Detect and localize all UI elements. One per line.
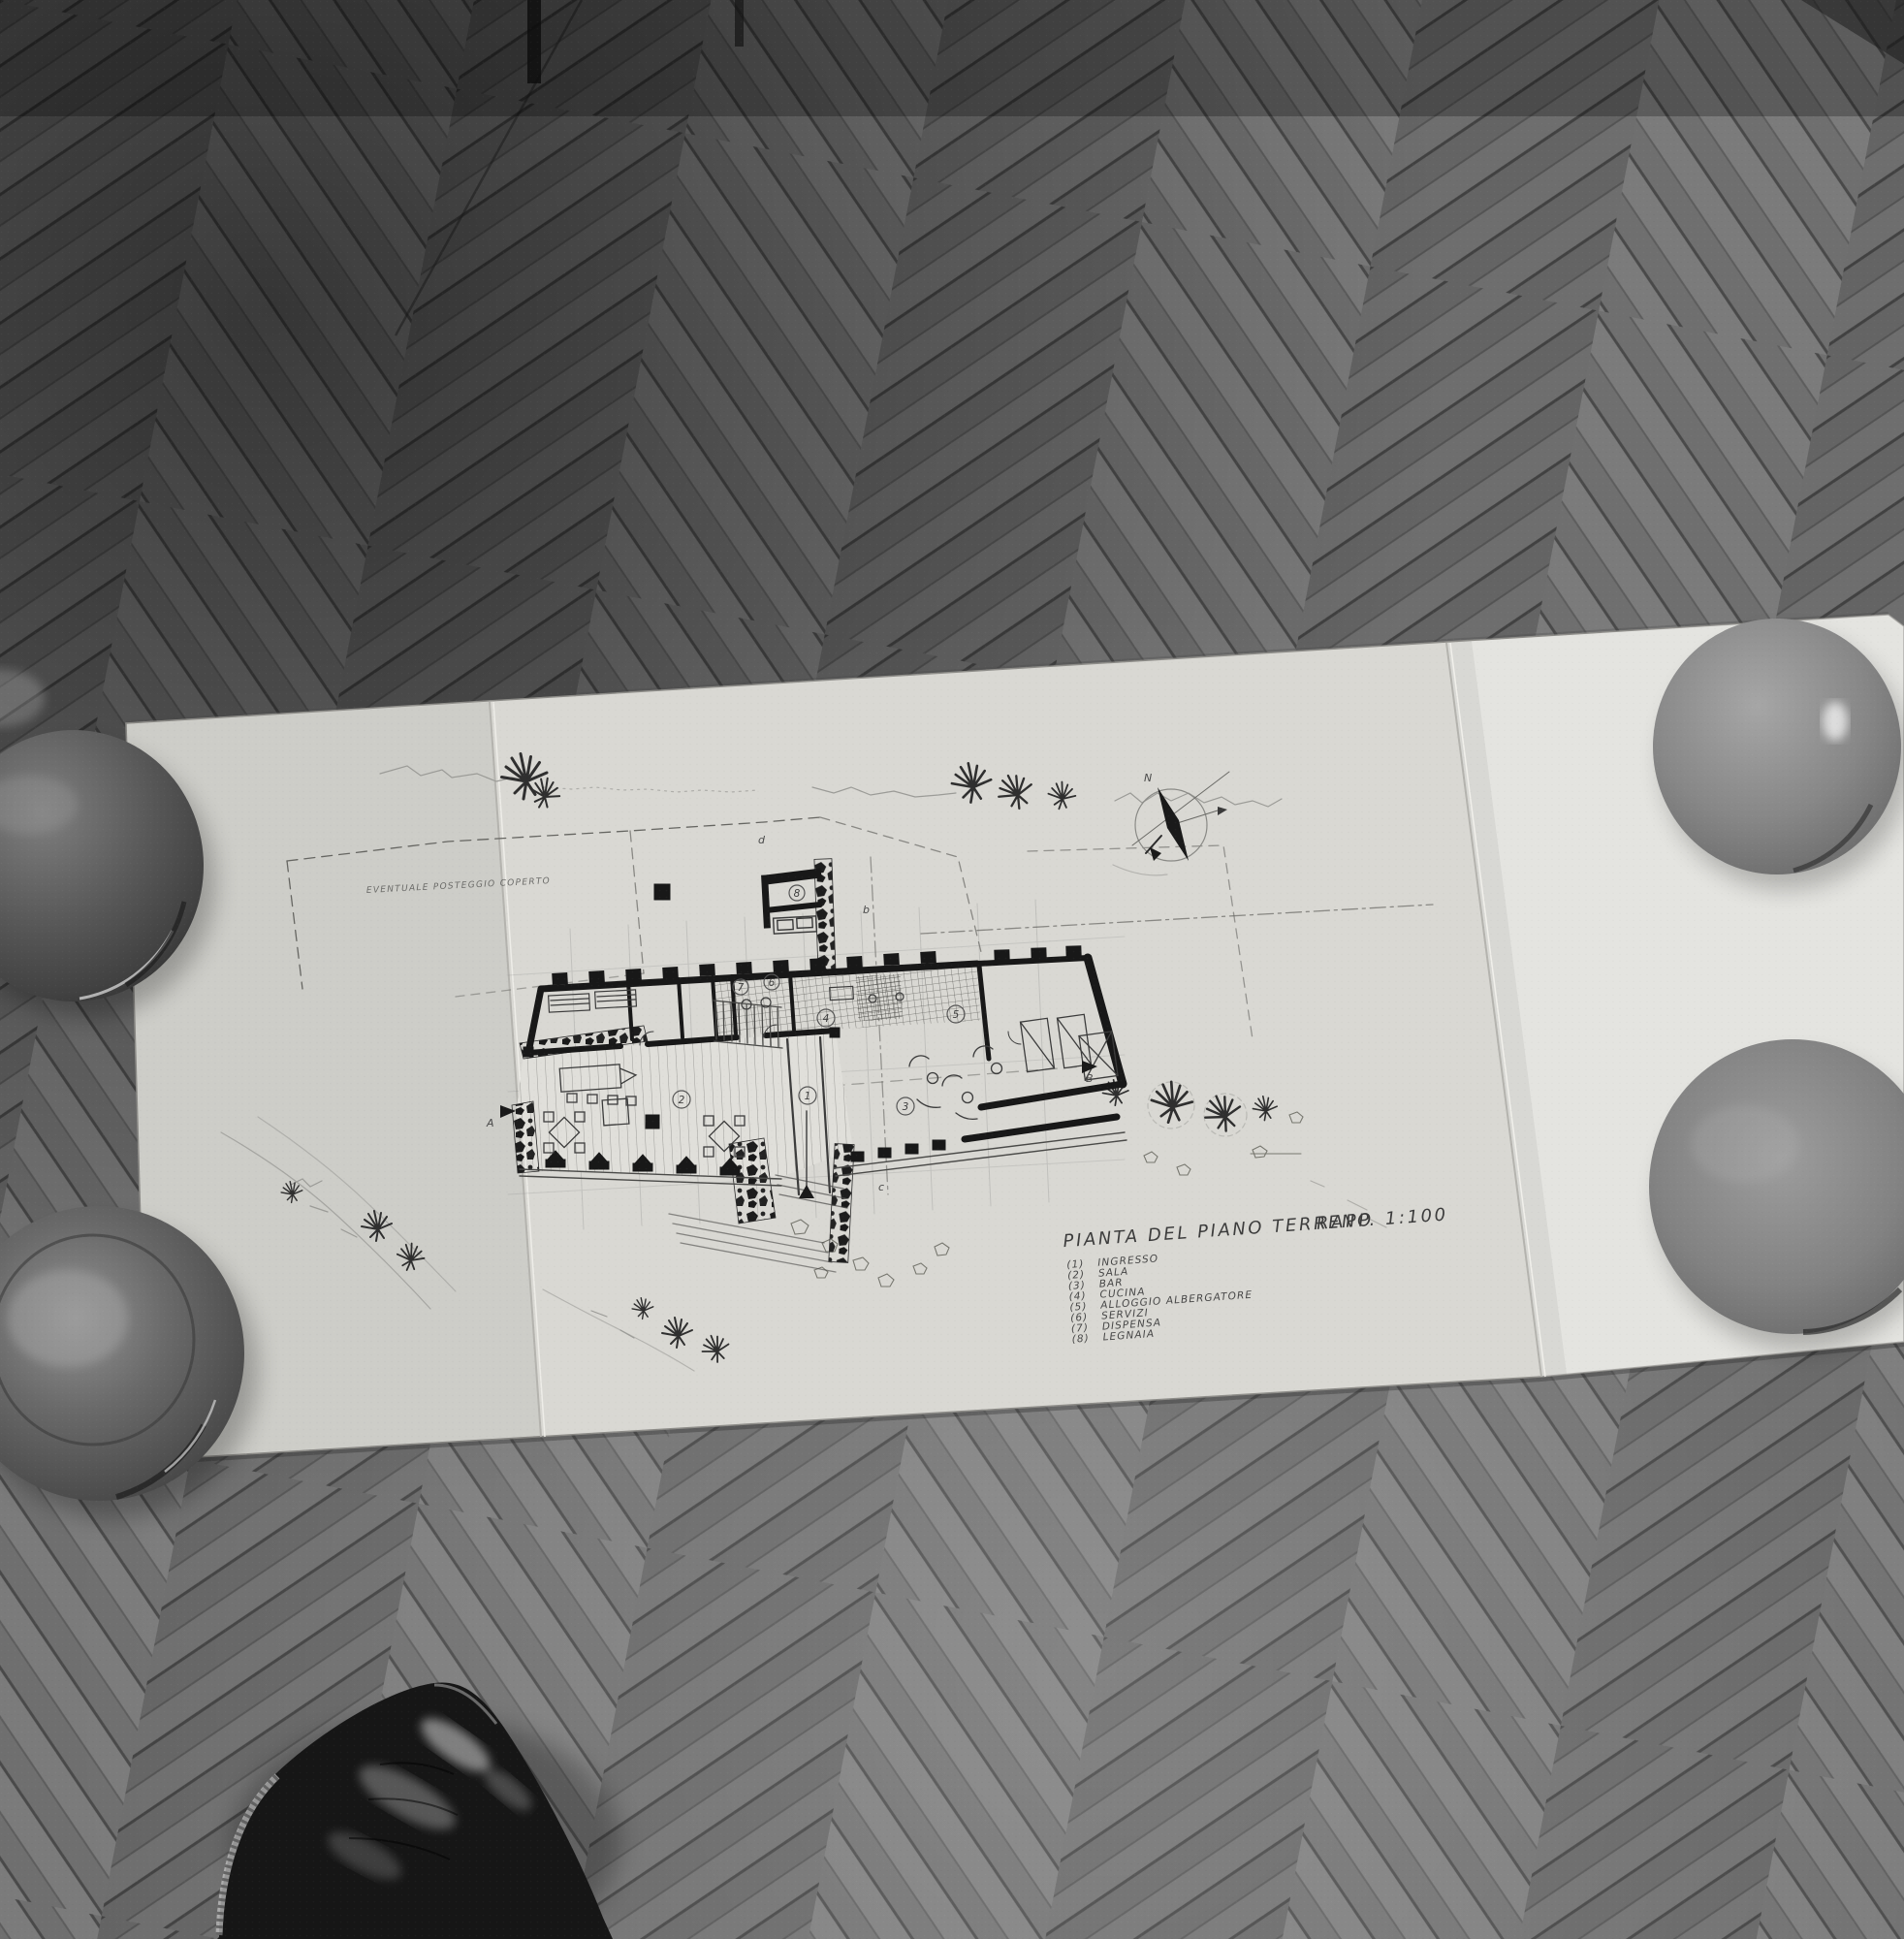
- photo-root: N: [0, 0, 1904, 1939]
- photo-canvas: N: [0, 0, 1904, 1939]
- film-grain: [0, 0, 1904, 1939]
